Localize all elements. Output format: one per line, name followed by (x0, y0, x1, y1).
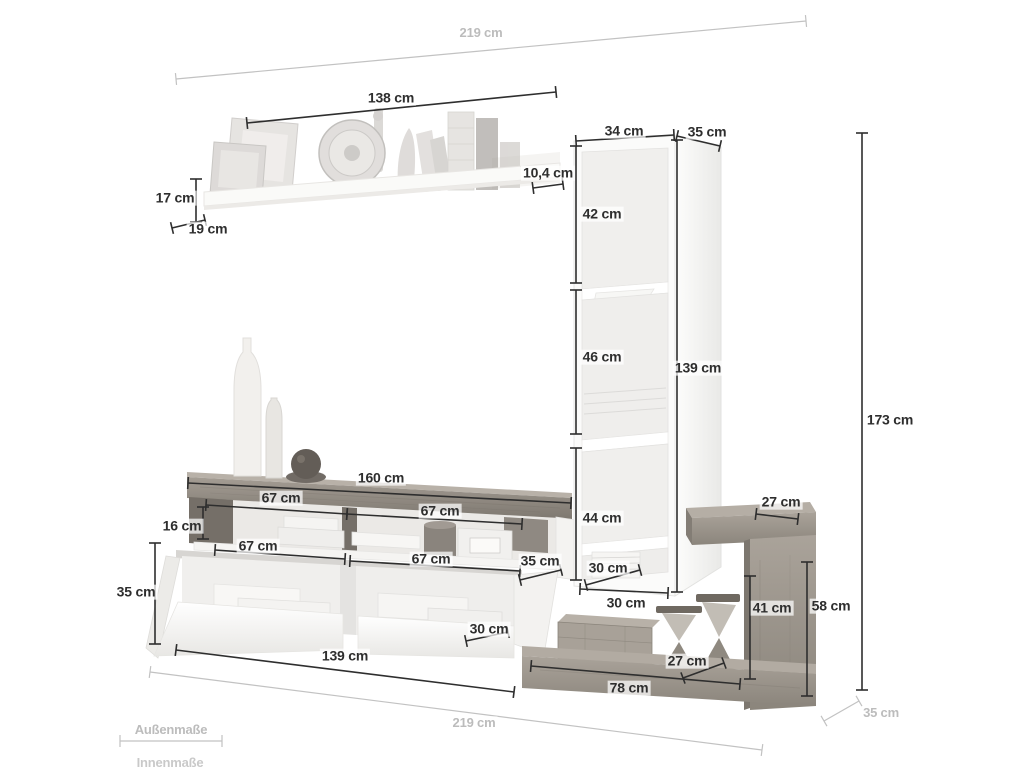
dimension-line (761, 744, 763, 756)
dimension-line (576, 135, 577, 147)
dimension-line (580, 589, 668, 593)
dimension-line (206, 505, 347, 514)
dim-lowboard-inner-height: 30 cm (468, 622, 511, 637)
dimension-line (533, 184, 563, 188)
dim-side-shelf-width: 78 cm (608, 681, 651, 696)
dimension-line (188, 477, 189, 489)
dim-column-width: 34 cm (603, 124, 646, 139)
dim-total-width-top: 219 cm (458, 26, 505, 40)
dim-lowboard-height: 35 cm (115, 585, 158, 600)
dimension-line (175, 644, 176, 656)
dimension-line (175, 73, 176, 85)
dim-total-height: 173 cm (865, 413, 915, 428)
dimension-line (739, 678, 740, 690)
dimension-line (555, 86, 556, 98)
dimension-line (668, 587, 669, 599)
dimension-line (350, 555, 351, 567)
dim-total-width-bottom: 219 cm (451, 716, 498, 730)
dimension-line (797, 513, 798, 525)
dim-shelf-height: 17 cm (154, 191, 197, 206)
dim-column-inner-width: 30 cm (587, 561, 630, 576)
dimension-line (755, 508, 756, 520)
dim-lowboard-width: 139 cm (320, 649, 370, 664)
dim-bench-open-left: 67 cm (260, 491, 303, 506)
dimension-line (856, 696, 862, 706)
dim-shelf-board-depth: 10,4 cm (521, 166, 575, 181)
dim-lowboard-flap-right: 67 cm (410, 552, 453, 567)
dim-bench-depth: 35 cm (519, 554, 562, 569)
furniture-dimension-diagram: 219 cm 138 cm 17 cm 19 cm 10,4 cm 34 cm … (0, 0, 1024, 768)
dimension-line (246, 117, 247, 129)
dimension-line (532, 182, 534, 194)
dim-column-depth: 35 cm (686, 125, 729, 140)
dim-column-sec-1: 42 cm (581, 207, 624, 222)
dimension-line (188, 483, 571, 503)
dim-bench-width: 160 cm (356, 471, 406, 486)
dim-total-depth: 35 cm (861, 706, 901, 720)
legend-inner-label: Innenmaße (135, 756, 206, 768)
dim-column-sec-3: 44 cm (581, 511, 624, 526)
dim-column-sec-2: 46 cm (581, 350, 624, 365)
dimension-line (345, 553, 346, 565)
dimension-line (513, 686, 514, 698)
dimension-line (530, 660, 531, 672)
dimension-line (756, 514, 798, 519)
dim-side-inner-height: 41 cm (751, 601, 794, 616)
dimension-line (824, 701, 859, 721)
dim-side-shelf-depth: 27 cm (666, 654, 709, 669)
dimension-line (206, 499, 207, 511)
dim-bench-inner-height: 16 cm (161, 519, 204, 534)
dim-shelf-width: 138 cm (366, 91, 416, 106)
dimension-line (520, 570, 561, 580)
dimension-line (571, 497, 572, 509)
dimension-line (347, 508, 348, 520)
dimension-line (215, 544, 216, 556)
dimension-line (215, 550, 345, 559)
dim-column-height: 139 cm (673, 361, 723, 376)
dimension-line (821, 716, 827, 726)
dimension-line (150, 672, 762, 750)
dim-side-top-depth: 27 cm (760, 495, 803, 510)
dimension-line (580, 583, 581, 595)
legend-outer-label: Außenmaße (133, 723, 210, 737)
dim-shelf-depth: 19 cm (187, 222, 230, 237)
dimension-line (149, 666, 151, 678)
dim-lowboard-flap-left: 67 cm (237, 539, 280, 554)
dim-column-outer-width: 30 cm (605, 596, 648, 611)
dim-bench-open-right: 67 cm (419, 504, 462, 519)
dim-side-height: 58 cm (810, 599, 853, 614)
dimension-lines-layer (0, 0, 1024, 768)
dimension-line (522, 518, 523, 530)
dimension-line (674, 129, 675, 141)
dimension-line (805, 15, 806, 27)
